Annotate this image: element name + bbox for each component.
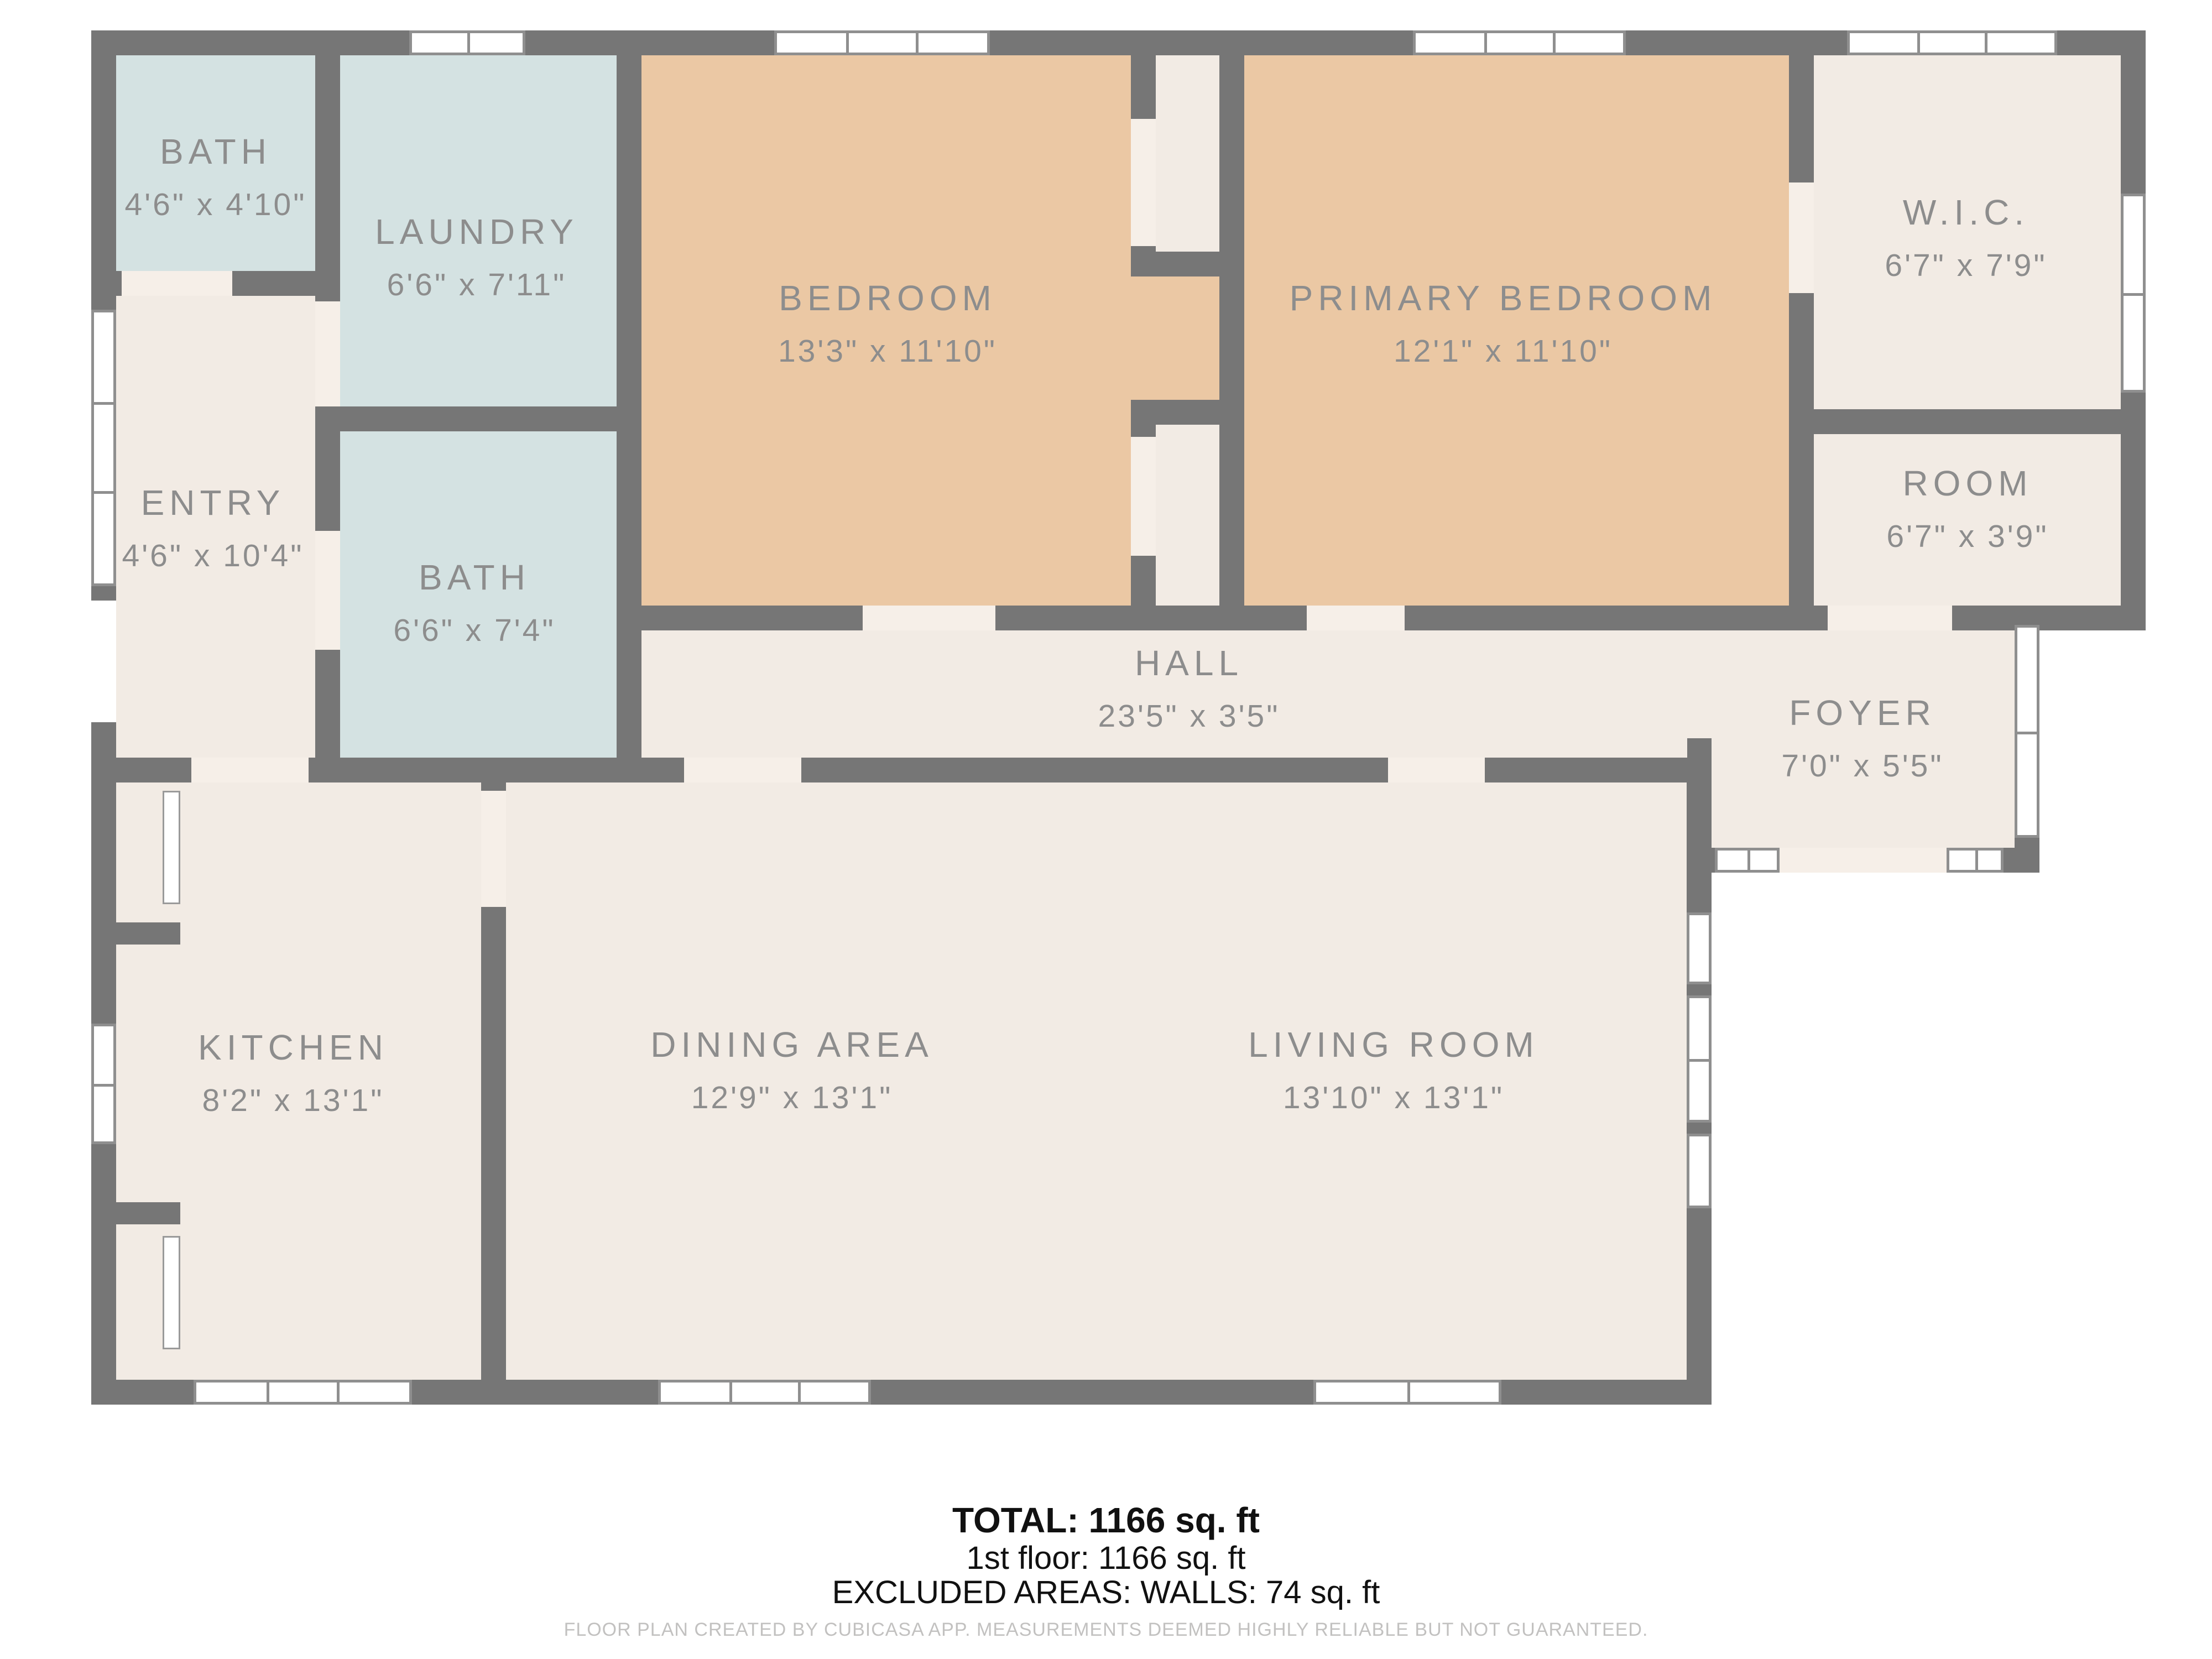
window-living-bottom: [1313, 1380, 1501, 1405]
door-opening-bath2: [315, 531, 340, 650]
room-name: ROOM: [1886, 463, 2048, 504]
room-name: HALL: [1098, 643, 1280, 684]
room-label-entry: ENTRY 4'6" x 10'4": [122, 482, 304, 574]
room-label-primary-bedroom: PRIMARY BEDROOM 12'1" x 11'10": [1290, 278, 1717, 369]
room-dims: 12'9" x 13'1": [650, 1079, 933, 1116]
door-opening-kitchen-dining: [481, 791, 506, 907]
kitchen-niche-upper: [116, 782, 163, 922]
room-dims: 8'2" x 13'1": [198, 1082, 388, 1119]
room-label-living-room: LIVING ROOM 13'10" x 13'1": [1248, 1024, 1539, 1116]
room-dims: 6'7" x 7'9": [1885, 247, 2047, 284]
window-living-right-3: [1687, 1134, 1712, 1208]
kitchen-niche-lower: [116, 1224, 163, 1380]
door-opening-hall-living: [1388, 758, 1485, 782]
room-dims: 4'6" x 4'10": [125, 186, 307, 223]
wall-laundry-bottom: [315, 406, 641, 431]
wall-exterior-top: [91, 30, 2146, 55]
room-label-room: ROOM 6'7" x 3'9": [1886, 463, 2048, 555]
room-name: LIVING ROOM: [1248, 1024, 1539, 1065]
door-opening-bedroom: [863, 606, 995, 630]
room-name: PRIMARY BEDROOM: [1290, 278, 1717, 319]
window-foyer-bottom-right: [1947, 848, 2004, 873]
window-living-right-2: [1687, 995, 1712, 1123]
door-opening-primary-bedroom: [1307, 606, 1405, 630]
room-label-hall: HALL 23'5" x 3'5": [1098, 643, 1280, 734]
closet-door-upper: [163, 791, 180, 904]
cubicasa-credit-text: FLOOR PLAN CREATED BY CUBICASA APP. MEAS…: [0, 1619, 2212, 1641]
window-entry-left: [91, 310, 116, 586]
door-opening-entry-exterior: [91, 601, 116, 722]
room-name: KITCHEN: [198, 1027, 388, 1068]
window-foyer-bottom-left: [1715, 848, 1780, 873]
room-dims: 7'0" x 5'5": [1781, 748, 1943, 784]
room-label-bath-1: BATH 4'6" x 4'10": [125, 131, 307, 223]
window-primary-top: [1413, 30, 1626, 55]
window-kitchen-left: [91, 1024, 116, 1144]
closet-door-lower: [163, 1236, 180, 1349]
door-opening-closet-bottom: [1131, 437, 1156, 556]
window-foyer-right: [2015, 625, 2039, 838]
total-area-text: TOTAL: 1166 sq. ft: [0, 1500, 2212, 1541]
room-dims: 4'6" x 10'4": [122, 538, 304, 574]
window-dining-bottom: [658, 1380, 871, 1405]
room-dims: 12'1" x 11'10": [1290, 333, 1717, 369]
wall-stub-kitchen-niche-lower: [91, 1202, 180, 1224]
room-dims: 23'5" x 3'5": [1098, 698, 1280, 734]
window-laundry-top: [409, 30, 525, 55]
room-fill-closet-bottom: [1145, 425, 1219, 630]
door-opening-bath1: [122, 271, 232, 296]
room-name: BATH: [125, 131, 307, 172]
room-dims: 6'6" x 7'4": [393, 612, 555, 649]
wall-stub-kitchen-niche-upper: [91, 922, 180, 945]
door-opening-wic: [1789, 182, 1814, 293]
room-label-bedroom: BEDROOM 13'3" x 11'10": [778, 278, 997, 369]
excluded-areas-text: EXCLUDED AREAS: WALLS: 74 sq. ft: [0, 1574, 2212, 1611]
room-dims: 13'10" x 13'1": [1248, 1079, 1539, 1116]
wall-wic-bottom: [1789, 409, 2146, 434]
room-label-bath-2: BATH 6'6" x 7'4": [393, 557, 555, 649]
room-name: BATH: [393, 557, 555, 598]
room-name: BEDROOM: [778, 278, 997, 319]
window-kitchen-bottom: [194, 1380, 412, 1405]
room-name: FOYER: [1781, 692, 1943, 733]
window-wic-right: [2121, 194, 2146, 393]
door-opening-front-foyer: [1780, 848, 1947, 873]
door-opening-entry-kitchen: [191, 758, 309, 782]
door-opening-laundry: [315, 301, 340, 406]
wall-primary-right: [1789, 55, 1814, 630]
room-label-dining-area: DINING AREA 12'9" x 13'1": [650, 1024, 933, 1116]
first-floor-area-text: 1st floor: 1166 sq. ft: [0, 1540, 2212, 1577]
wall-primary-left: [1219, 55, 1244, 630]
room-name: ENTRY: [122, 482, 304, 523]
door-opening-closet-top: [1131, 119, 1156, 246]
floor-plan-canvas: BATH 4'6" x 4'10" LAUNDRY 6'6" x 7'11" B…: [0, 0, 2212, 1659]
room-label-laundry: LAUNDRY 6'6" x 7'11": [375, 211, 578, 303]
room-name: W.I.C.: [1885, 192, 2047, 233]
door-opening-room: [1828, 606, 1952, 630]
window-bedroom-top: [774, 30, 990, 55]
room-name: LAUNDRY: [375, 211, 578, 252]
room-label-foyer: FOYER 7'0" x 5'5": [1781, 692, 1943, 784]
room-label-wic: W.I.C. 6'7" x 7'9": [1885, 192, 2047, 284]
room-fill-closet-top: [1145, 55, 1219, 252]
room-dims: 13'3" x 11'10": [778, 333, 997, 369]
door-opening-hall-dining: [684, 758, 801, 782]
window-living-right-1: [1687, 912, 1712, 984]
room-label-kitchen: KITCHEN 8'2" x 13'1": [198, 1027, 388, 1119]
room-dims: 6'6" x 7'11": [375, 267, 578, 303]
window-wic-top: [1847, 30, 2057, 55]
room-name: DINING AREA: [650, 1024, 933, 1065]
room-dims: 6'7" x 3'9": [1886, 518, 2048, 555]
